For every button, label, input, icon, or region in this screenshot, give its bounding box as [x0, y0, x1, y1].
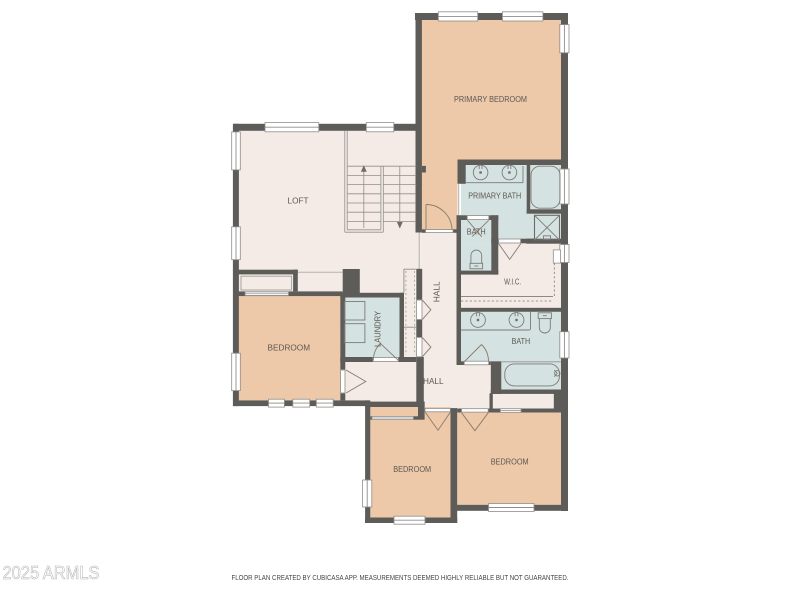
svg-text:PRIMARY BEDROOM: PRIMARY BEDROOM [454, 95, 527, 104]
svg-text:FLOOR PLAN CREATED BY CUBICASA: FLOOR PLAN CREATED BY CUBICASA APP. MEAS… [232, 575, 569, 582]
svg-text:LAUNDRY: LAUNDRY [373, 310, 382, 347]
svg-text:2025 ARMLS: 2025 ARMLS [3, 563, 100, 583]
svg-text:BATH: BATH [512, 337, 531, 346]
svg-text:W.I.C.: W.I.C. [504, 277, 521, 286]
svg-text:LOFT: LOFT [288, 197, 309, 206]
svg-text:HALL: HALL [432, 281, 441, 303]
svg-text:BATH: BATH [467, 228, 486, 237]
svg-text:BEDROOM: BEDROOM [393, 465, 431, 474]
svg-text:BEDROOM: BEDROOM [491, 458, 529, 467]
svg-text:HALL: HALL [423, 377, 444, 386]
svg-text:BEDROOM: BEDROOM [268, 343, 311, 352]
svg-text:PRIMARY BATH: PRIMARY BATH [468, 191, 521, 200]
